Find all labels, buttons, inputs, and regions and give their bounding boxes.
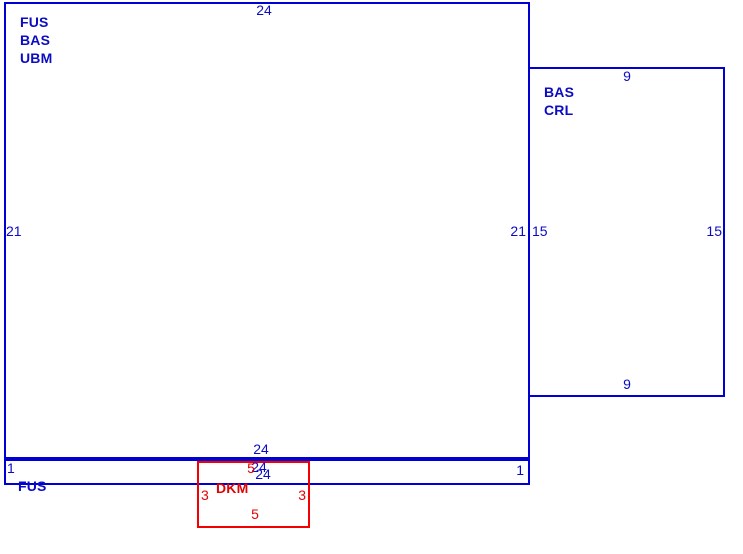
- dim-dkm-bottom: 5: [251, 507, 259, 522]
- panel-side-labels: BAS CRL: [544, 83, 574, 119]
- dim-dkm-top: 5: [247, 461, 255, 476]
- item-dkm-label: DKM: [216, 479, 248, 497]
- dim-side-left: 15: [532, 224, 548, 239]
- dim-main-bottom: 24: [253, 442, 269, 457]
- dim-side-top: 9: [623, 69, 631, 84]
- panel-main-labels: FUS BAS UBM: [20, 13, 52, 67]
- dim-dkm-right: 3: [298, 488, 306, 503]
- panel-side-label-line: CRL: [544, 101, 574, 119]
- panel-main-outline[interactable]: [4, 2, 530, 459]
- dim-side-bottom: 9: [623, 377, 631, 392]
- dim-side-right: 15: [706, 224, 722, 239]
- panel-main-label-line: BAS: [20, 31, 52, 49]
- dim-strip-right: 1: [516, 463, 524, 478]
- panel-main-label-line: FUS: [20, 13, 52, 31]
- dim-main-top: 24: [256, 3, 272, 18]
- dim-dkm-left: 3: [201, 488, 209, 503]
- item-dkm-label-line: DKM: [216, 479, 248, 497]
- dim-strip-bottom: 24: [255, 467, 271, 482]
- dim-main-right: 21: [510, 224, 526, 239]
- panel-side-label-line: BAS: [544, 83, 574, 101]
- dim-main-left: 21: [6, 224, 22, 239]
- panel-strip-labels: FUS: [18, 477, 47, 495]
- panel-strip-label-line: FUS: [18, 477, 47, 495]
- panel-main-label-line: UBM: [20, 49, 52, 67]
- dim-strip-left: 1: [7, 461, 15, 476]
